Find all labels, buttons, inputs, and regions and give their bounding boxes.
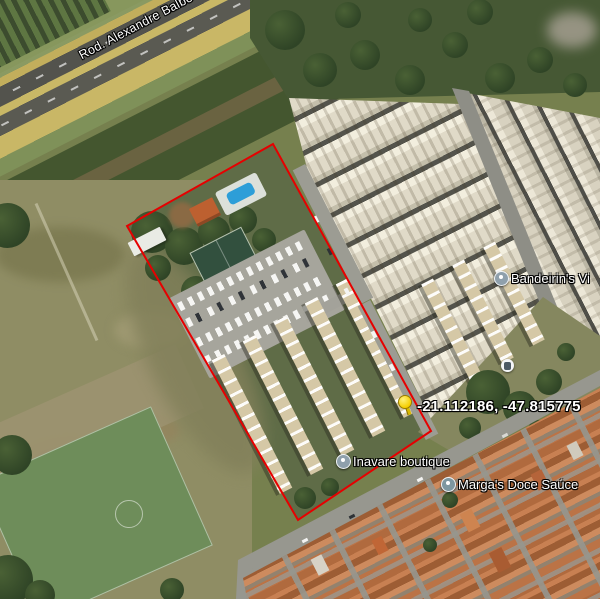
tree [442,32,468,58]
tree [335,2,361,28]
tree [294,487,316,509]
tree [423,538,437,552]
tree [536,369,562,395]
tree [442,492,458,508]
bus-stop-icon[interactable] [501,359,514,372]
court-midline [216,240,231,269]
tree [563,73,587,97]
soccer-center-circle [115,500,143,528]
tree [303,53,337,87]
poi-label[interactable]: Inavare boutique [353,455,450,468]
marker-coordinates-label: -21.112186, -47.815775 [417,399,581,414]
tree [527,47,553,73]
poi-label[interactable]: Bandeirin's Vi [511,272,590,285]
poi-label[interactable]: Marga's Doce Saúce [458,478,578,491]
place-pin-icon[interactable] [336,454,351,469]
clearing [547,12,597,48]
pushpin-icon[interactable] [396,394,418,418]
swimming-pool [225,181,256,205]
tree [408,8,432,32]
tree [321,478,339,496]
place-pin-icon[interactable] [494,271,509,286]
bus-glyph [504,362,511,370]
tree [395,65,425,95]
pushpin-head [398,395,412,409]
tree [350,40,380,70]
tree [160,578,184,599]
tree [145,255,171,281]
tree [485,63,515,93]
tree [265,10,305,50]
satellite-map-canvas[interactable]: Rod. Alexandre Balbo Bandeirin's Vi Inav… [0,0,600,599]
tree [557,343,575,361]
place-pin-icon[interactable] [441,477,456,492]
tree [467,0,493,25]
